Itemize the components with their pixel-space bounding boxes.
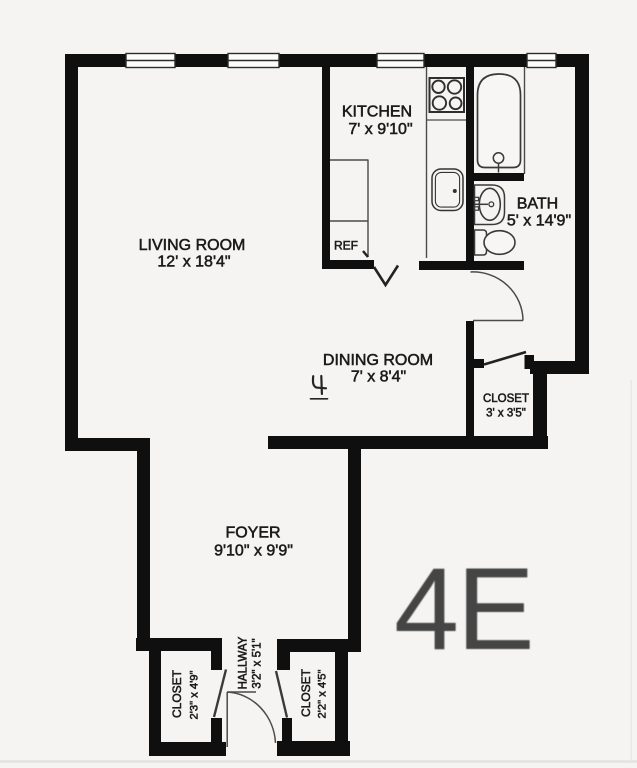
svg-text:7' x 9'10": 7' x 9'10" <box>348 121 412 138</box>
svg-text:3'2" x 5'1": 3'2" x 5'1" <box>252 638 264 688</box>
svg-text:CLOSET: CLOSET <box>483 393 529 405</box>
svg-text:2'2" x 4'5": 2'2" x 4'5" <box>317 670 329 719</box>
svg-text:KITCHEN: KITCHEN <box>342 104 412 121</box>
svg-text:BATH: BATH <box>517 196 558 213</box>
svg-text:7' x 8'4": 7' x 8'4" <box>351 369 406 386</box>
svg-text:3' x 3'5": 3' x 3'5" <box>486 408 526 420</box>
svg-text:12' x 18'4": 12' x 18'4" <box>157 254 230 271</box>
svg-text:REF: REF <box>334 239 358 253</box>
svg-text:LIVING ROOM: LIVING ROOM <box>139 237 246 254</box>
svg-text:FOYER: FOYER <box>225 525 280 542</box>
svg-text:4E: 4E <box>394 543 532 674</box>
svg-text:DINING ROOM: DINING ROOM <box>323 352 433 369</box>
svg-text:9'10" x 9'9": 9'10" x 9'9" <box>214 543 293 560</box>
svg-text:2'3" x 4'9": 2'3" x 4'9" <box>189 671 201 720</box>
svg-text:HALLWAY: HALLWAY <box>238 636 250 689</box>
svg-text:CLOSET: CLOSET <box>170 669 184 718</box>
svg-text:5' x 14'9": 5' x 14'9" <box>507 213 571 230</box>
svg-text:CLOSET: CLOSET <box>299 668 313 717</box>
